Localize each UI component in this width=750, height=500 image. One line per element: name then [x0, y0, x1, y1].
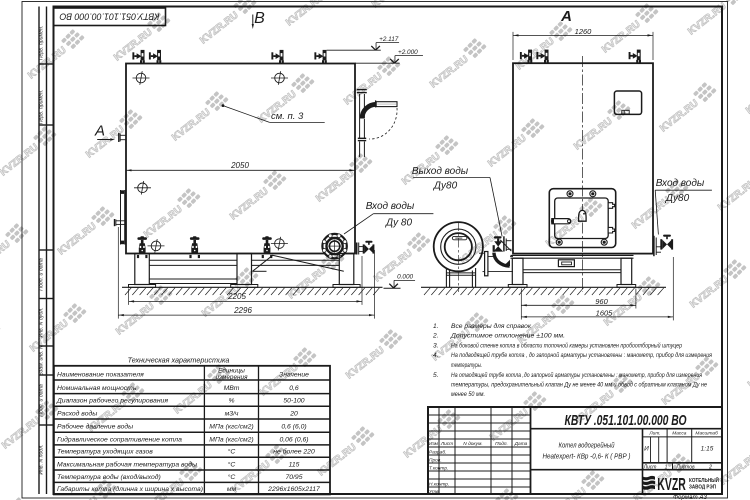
svg-text:°С: °С [228, 460, 236, 468]
svg-text:Расход воды: Расход воды [57, 409, 97, 417]
svg-text:Ду 80: Ду 80 [385, 218, 412, 229]
svg-text:Лит.: Лит. [648, 431, 660, 437]
svg-text:Перв. примен.: Перв. примен. [39, 90, 45, 124]
svg-text:МПа (кгс/см2): МПа (кгс/см2) [209, 436, 253, 443]
svg-text:1.: 1. [433, 323, 439, 330]
svg-text:2.: 2. [432, 333, 439, 340]
svg-text:1:15: 1:15 [701, 446, 714, 453]
svg-text:МВт: МВт [224, 385, 240, 392]
svg-text:Котел водогрейный: Котел водогрейный [559, 441, 615, 449]
svg-text:2296: 2296 [233, 306, 252, 315]
svg-text:Диапазон рабочего регулировани: Диапазон рабочего регулирования [56, 397, 168, 405]
svg-text:Подп.: Подп. [495, 441, 508, 447]
svg-text:Температура уходящих газов: Температура уходящих газов [57, 448, 153, 456]
svg-text:Т.контр.: Т.контр. [429, 465, 448, 471]
svg-text:2: 2 [708, 464, 712, 470]
svg-text:На боковой стенке котла в обла: На боковой стенке котла в области топочн… [451, 341, 682, 349]
svg-text:Инв. N подл.: Инв. N подл. [39, 444, 45, 474]
svg-text:70/95: 70/95 [285, 474, 302, 481]
svg-text:0,6: 0,6 [289, 385, 299, 392]
svg-text:И: И [644, 446, 649, 453]
svg-text:Подп. и дата: Подп. и дата [39, 258, 45, 291]
svg-text:КОТЕЛЬНЫЙ: КОТЕЛЬНЫЙ [689, 476, 719, 484]
svg-text:Гидравлическое сопративление к: Гидравлическое сопративление котла [57, 435, 182, 443]
svg-text:Масса: Масса [672, 431, 687, 437]
svg-text:20: 20 [289, 410, 298, 417]
svg-text:Формат А3: Формат А3 [673, 494, 707, 500]
svg-text:115: 115 [289, 461, 300, 468]
svg-text:960: 960 [595, 297, 608, 306]
svg-text:50-100: 50-100 [283, 398, 304, 405]
svg-text:Техническая характеристика: Техническая характеристика [128, 355, 230, 364]
svg-text:МПа (кгс/см2): МПа (кгс/см2) [209, 424, 253, 431]
svg-text:Вход воды: Вход воды [366, 201, 415, 212]
svg-text:На подводящей трубе котла ,: На подводящей трубе котла , до запорной … [451, 351, 712, 359]
svg-text:ЗАВОД РЭП: ЗАВОД РЭП [689, 485, 716, 491]
svg-text:2296х1605х2117: 2296х1605х2117 [267, 486, 320, 493]
svg-text:Н.контр.: Н.контр. [429, 481, 449, 487]
svg-text:м3/ч: м3/ч [225, 410, 239, 417]
svg-text:Лист: Лист [440, 441, 453, 447]
svg-text:Наименование показателя: Наименование показателя [57, 372, 144, 379]
svg-text:менее 50 мм.: менее 50 мм. [451, 391, 485, 398]
svg-text:Утв.: Утв. [429, 489, 440, 495]
svg-text:°С: °С [228, 448, 236, 456]
svg-text:2050: 2050 [230, 161, 249, 170]
svg-text:Максимальная рабочая температу: Максимальная рабочая температура воды [57, 460, 197, 468]
svg-text:+2.117: +2.117 [379, 36, 399, 43]
svg-text:0.000: 0.000 [397, 274, 413, 281]
svg-text:КВТУ.051.101.00.000 ВО: КВТУ.051.101.00.000 ВО [60, 12, 160, 22]
svg-text:На отводящей трубе котла ,до з: На отводящей трубе котла ,до запорной ар… [451, 371, 702, 379]
svg-text:температуры.: температуры. [451, 362, 482, 369]
svg-text:Масштаб: Масштаб [695, 431, 718, 437]
svg-text:5.: 5. [433, 372, 439, 379]
svg-text:В: В [254, 10, 265, 27]
svg-text:°С: °С [228, 473, 236, 481]
svg-text:%: % [228, 398, 234, 405]
svg-text:0,06 (0,6): 0,06 (0,6) [279, 436, 308, 443]
svg-text:1260: 1260 [575, 27, 593, 36]
svg-text:0,6 (6,0): 0,6 (6,0) [281, 424, 306, 431]
svg-text:температуры, предохранительный: температуры, предохранительный клапан Ду… [451, 381, 707, 389]
svg-text:Перв. примен.: Перв. примен. [39, 26, 45, 60]
svg-text:Пров.: Пров. [429, 457, 442, 463]
svg-text:Heatexpert- КВр -0,6- К ( РВР: Heatexpert- КВр -0,6- К ( РВР ) [543, 454, 631, 461]
svg-text:N докум.: N докум. [463, 441, 482, 447]
svg-text:Ду80: Ду80 [433, 181, 458, 192]
svg-text:Разраб.: Разраб. [429, 449, 446, 455]
svg-text:Дата: Дата [514, 441, 528, 447]
svg-text:Температура воды (вход/выход): Температура воды (вход/выход) [57, 473, 161, 481]
svg-text:+2.000: +2.000 [398, 49, 418, 56]
svg-text:Лист: Лист [643, 464, 657, 470]
